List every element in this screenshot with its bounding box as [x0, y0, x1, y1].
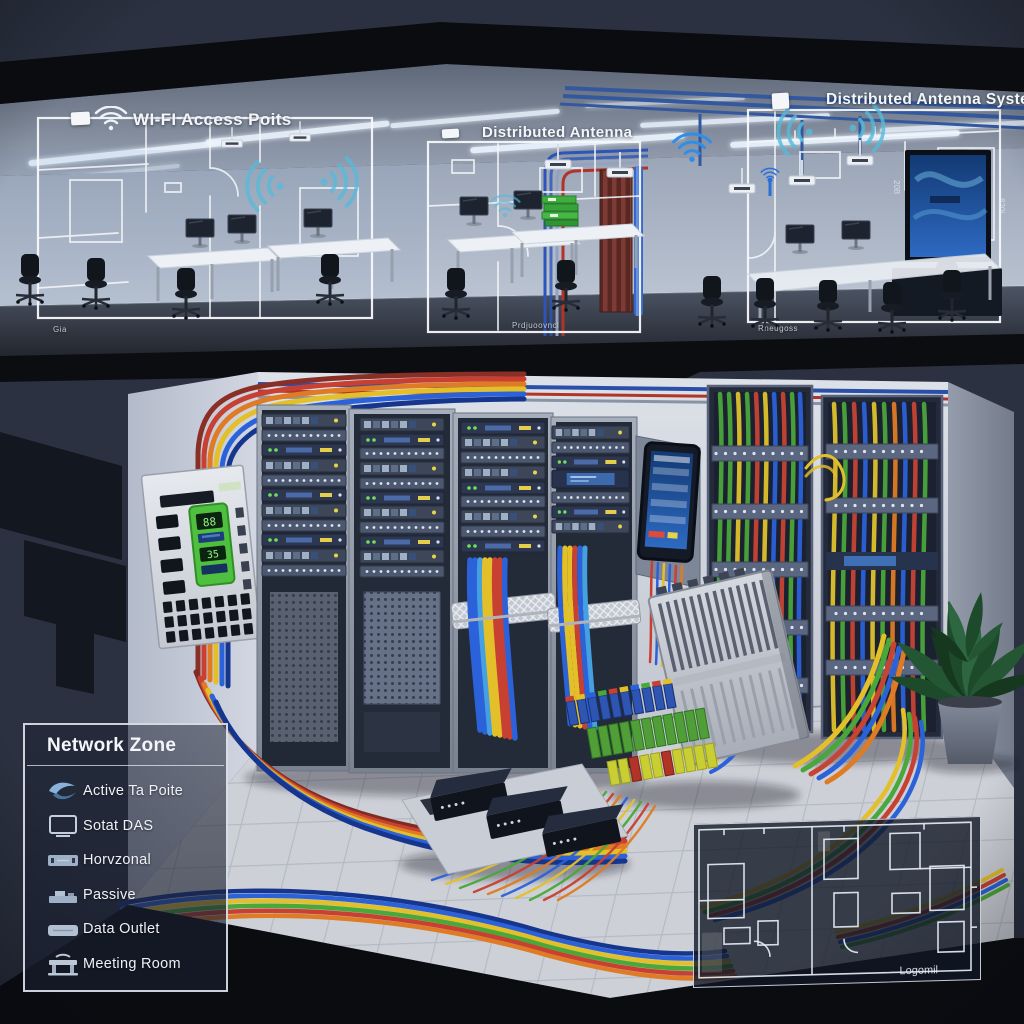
- access-point-box-icon: [71, 112, 91, 126]
- das-box-icon: [772, 93, 790, 110]
- legend-item-label: Active Ta Poite: [83, 783, 183, 799]
- legend-item-label: Meeting Room: [83, 956, 181, 972]
- active-tap-icon: [43, 779, 83, 803]
- das-display-icon: [43, 814, 83, 838]
- legend-item-label: Horvzonal: [83, 852, 151, 868]
- data-outlet-icon: [43, 917, 83, 941]
- horizontal-panel-icon: [43, 848, 83, 872]
- side-label-right: 820i: [997, 198, 1006, 213]
- zone-footer-gia: Gia: [53, 325, 67, 334]
- legend-title: Network Zone: [47, 735, 226, 757]
- zone-footer-das: Rneugoss: [758, 324, 798, 333]
- passive-device-icon: [43, 883, 83, 907]
- legend-item: Horvzonal: [25, 843, 226, 878]
- wifi-title-icon: [94, 106, 128, 134]
- meeting-room-icon: [43, 952, 83, 976]
- network-infrastructure-illustration: 88 35: [0, 0, 1024, 1024]
- legend-item-label: Data Outlet: [83, 921, 160, 937]
- floorplan-inset-drawing: [694, 817, 979, 986]
- side-label-left: 20B: [892, 180, 901, 194]
- legend-item: Sotat DAS: [25, 809, 226, 844]
- legend-item-label: Passive: [83, 887, 136, 903]
- legend-item: Meeting Room: [25, 947, 226, 982]
- legend-item-label: Sotat DAS: [83, 818, 153, 834]
- zone-title-das: Distributed Antenna System: [826, 91, 1024, 109]
- zone-title-distributed-antenna: Distributed Antenna: [482, 124, 632, 141]
- legend-panel: Network Zone Active Ta Poite Sotat DAS H…: [23, 723, 228, 992]
- zone-footer-antenna: Prdjuoovncl: [512, 321, 559, 330]
- legend-item: Active Ta Poite: [25, 774, 226, 809]
- legend-item: Data Outlet: [25, 912, 226, 947]
- floorplan-inset: Logomil: [693, 816, 981, 988]
- antenna-box-icon: [442, 129, 459, 139]
- zone-title-wifi-access: WI-FI Access Poits: [133, 110, 292, 130]
- floorplan-inset-label: Logomil: [899, 964, 938, 977]
- legend-item: Passive: [25, 878, 226, 913]
